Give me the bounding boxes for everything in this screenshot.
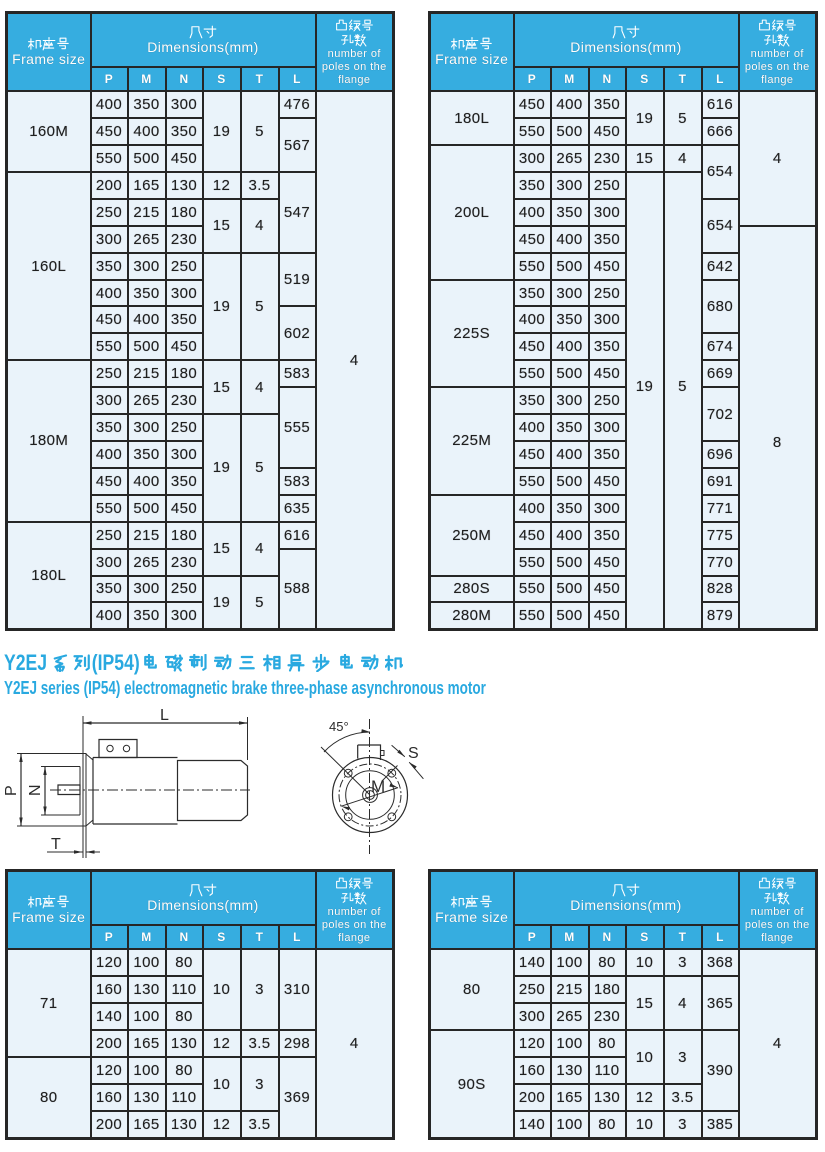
svg-text:M: M [371,777,385,796]
svg-text:45°: 45° [329,719,349,734]
svg-text:L: L [160,707,169,724]
svg-text:P: P [3,785,20,796]
svg-text:N: N [27,784,44,796]
svg-text:T: T [51,836,61,853]
svg-text:S: S [408,745,419,762]
